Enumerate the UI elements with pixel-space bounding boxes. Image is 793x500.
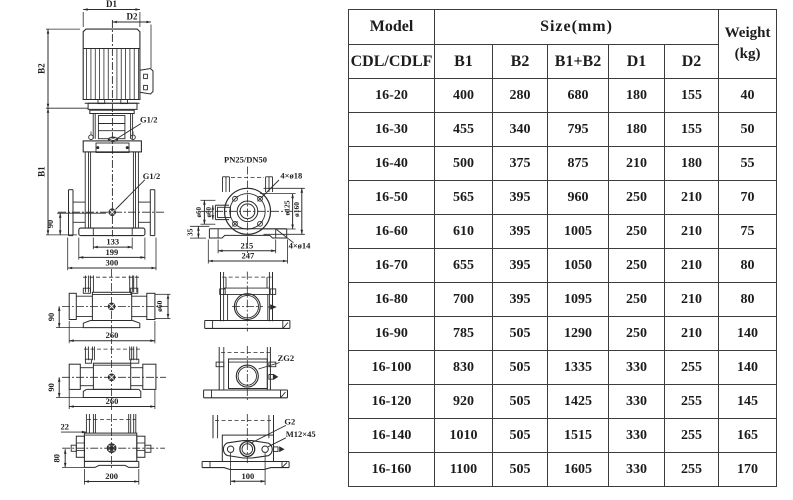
svg-text:4×ø18: 4×ø18 — [280, 171, 302, 181]
svg-text:ø60: ø60 — [155, 300, 164, 312]
svg-text:247: 247 — [242, 251, 256, 261]
svg-text:90: 90 — [45, 220, 55, 229]
svg-text:80: 80 — [51, 454, 61, 463]
svg-text:PN25/DN50: PN25/DN50 — [224, 155, 267, 165]
svg-text:215: 215 — [241, 240, 254, 250]
svg-text:ZG2: ZG2 — [278, 353, 295, 363]
svg-text:ø60: ø60 — [205, 206, 213, 217]
svg-text:ø125: ø125 — [283, 200, 292, 215]
svg-text:100: 100 — [241, 471, 254, 481]
svg-text:G2: G2 — [284, 416, 295, 426]
svg-text:M12×45: M12×45 — [286, 429, 316, 439]
svg-text:300: 300 — [105, 258, 118, 268]
svg-text:G1/2: G1/2 — [140, 115, 157, 125]
svg-text:D2: D2 — [127, 12, 138, 22]
svg-text:35: 35 — [186, 228, 195, 236]
svg-text:22: 22 — [60, 421, 69, 431]
svg-text:90: 90 — [46, 313, 56, 322]
svg-text:B2: B2 — [37, 63, 47, 74]
svg-text:199: 199 — [105, 247, 118, 257]
svg-text:133: 133 — [106, 237, 119, 247]
svg-text:ø60: ø60 — [195, 206, 203, 217]
svg-text:260: 260 — [106, 396, 119, 406]
svg-text:B1: B1 — [37, 166, 47, 177]
svg-text:D1: D1 — [106, 0, 117, 9]
svg-text:90: 90 — [46, 383, 56, 392]
svg-text:260: 260 — [106, 330, 119, 340]
svg-text:200: 200 — [105, 471, 118, 481]
svg-text:G1/2: G1/2 — [143, 171, 160, 181]
svg-text:ø160: ø160 — [292, 202, 301, 217]
